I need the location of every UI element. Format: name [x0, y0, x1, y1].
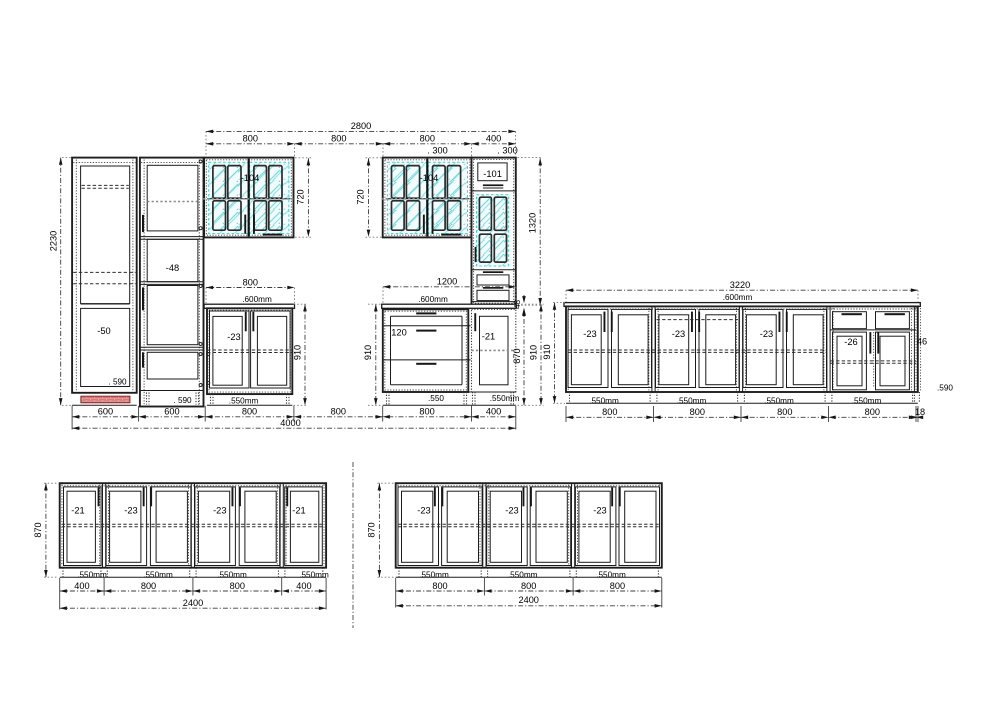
svg-text:.550mm: .550mm — [143, 570, 173, 579]
svg-text:. 590: . 590 — [108, 378, 127, 387]
svg-text:2400: 2400 — [183, 598, 203, 608]
svg-text:-50: -50 — [97, 326, 110, 336]
svg-text:-48: -48 — [166, 263, 179, 273]
svg-text:800: 800 — [331, 407, 346, 417]
svg-text:720: 720 — [296, 189, 306, 204]
svg-text:.550mm: .550mm — [419, 570, 449, 579]
svg-text:800: 800 — [690, 407, 705, 417]
svg-text:-104: -104 — [420, 173, 439, 183]
svg-text:.550mm: .550mm — [677, 396, 707, 405]
svg-text:120: 120 — [391, 327, 407, 337]
svg-text:-104: -104 — [241, 173, 260, 183]
svg-text:-21: -21 — [71, 505, 84, 515]
svg-text:46: 46 — [917, 337, 927, 347]
svg-text:-23: -23 — [124, 505, 137, 515]
svg-text:-23: -23 — [417, 505, 430, 515]
svg-text:400: 400 — [296, 581, 311, 591]
svg-text:800: 800 — [242, 407, 257, 417]
svg-text:-21: -21 — [482, 331, 495, 341]
svg-text:800: 800 — [777, 407, 792, 417]
svg-text:.550mm: .550mm — [596, 570, 626, 579]
svg-text:870: 870 — [33, 522, 43, 537]
svg-text:-23: -23 — [227, 332, 240, 342]
svg-text:.550mm: .550mm — [852, 396, 882, 405]
svg-text:2230: 2230 — [49, 231, 59, 251]
svg-text:-21: -21 — [292, 505, 305, 515]
svg-text:. 590: . 590 — [173, 396, 192, 405]
svg-text:720: 720 — [356, 189, 366, 204]
svg-text:600: 600 — [164, 407, 179, 417]
svg-text:910: 910 — [363, 345, 373, 360]
svg-text:800: 800 — [610, 581, 625, 591]
svg-text:1200: 1200 — [437, 277, 457, 287]
svg-text:800: 800 — [141, 581, 156, 591]
svg-text:800: 800 — [521, 581, 536, 591]
svg-text:.550mm: .550mm — [508, 570, 538, 579]
svg-text:18: 18 — [915, 407, 925, 417]
svg-text:-23: -23 — [583, 329, 596, 339]
svg-text:.600mm: .600mm — [723, 293, 753, 302]
svg-text:910: 910 — [529, 345, 539, 360]
svg-text:800: 800 — [331, 134, 346, 144]
svg-text:2800: 2800 — [351, 121, 371, 131]
svg-text:870: 870 — [512, 348, 522, 363]
svg-text:-101: -101 — [483, 169, 502, 179]
svg-text:400: 400 — [486, 134, 501, 144]
svg-text:910: 910 — [542, 344, 552, 359]
svg-text:-23: -23 — [213, 505, 226, 515]
svg-text:800: 800 — [419, 407, 434, 417]
svg-text:.550mm: .550mm — [217, 570, 247, 579]
svg-text:-23: -23 — [505, 505, 518, 515]
svg-text:2400: 2400 — [518, 595, 538, 605]
svg-text:.550mm: .550mm — [299, 570, 329, 579]
svg-text:.550mm: .550mm — [764, 396, 794, 405]
svg-text:-23: -23 — [672, 329, 685, 339]
svg-text:800: 800 — [420, 134, 435, 144]
svg-text:800: 800 — [432, 581, 447, 591]
svg-text:800: 800 — [865, 407, 880, 417]
svg-text:800: 800 — [602, 407, 617, 417]
svg-text:400: 400 — [74, 581, 89, 591]
svg-text:.550: .550 — [428, 394, 444, 403]
svg-text:.590: .590 — [937, 384, 953, 393]
svg-text:.550mm: .550mm — [589, 396, 619, 405]
svg-text:. 300: . 300 — [497, 146, 517, 156]
svg-text:4000: 4000 — [280, 418, 300, 428]
svg-text:.600mm: .600mm — [242, 295, 272, 304]
svg-text:-23: -23 — [760, 329, 773, 339]
svg-text:400: 400 — [486, 407, 501, 417]
svg-text:-26: -26 — [844, 337, 857, 347]
svg-text:870: 870 — [367, 522, 377, 537]
svg-text:. 300: . 300 — [427, 146, 447, 156]
svg-text:.550mm: .550mm — [229, 396, 259, 405]
svg-text:910: 910 — [292, 345, 302, 360]
svg-text:.600mm: .600mm — [418, 295, 448, 304]
svg-text:.550mm: .550mm — [77, 570, 107, 579]
svg-text:3220: 3220 — [730, 280, 750, 290]
svg-text:800: 800 — [230, 581, 245, 591]
svg-text:800: 800 — [243, 277, 258, 287]
svg-text:600: 600 — [98, 407, 113, 417]
svg-text:-23: -23 — [593, 505, 606, 515]
svg-text:.550mm: .550mm — [490, 394, 520, 403]
svg-text:800: 800 — [243, 134, 258, 144]
svg-text:1320: 1320 — [527, 213, 537, 233]
